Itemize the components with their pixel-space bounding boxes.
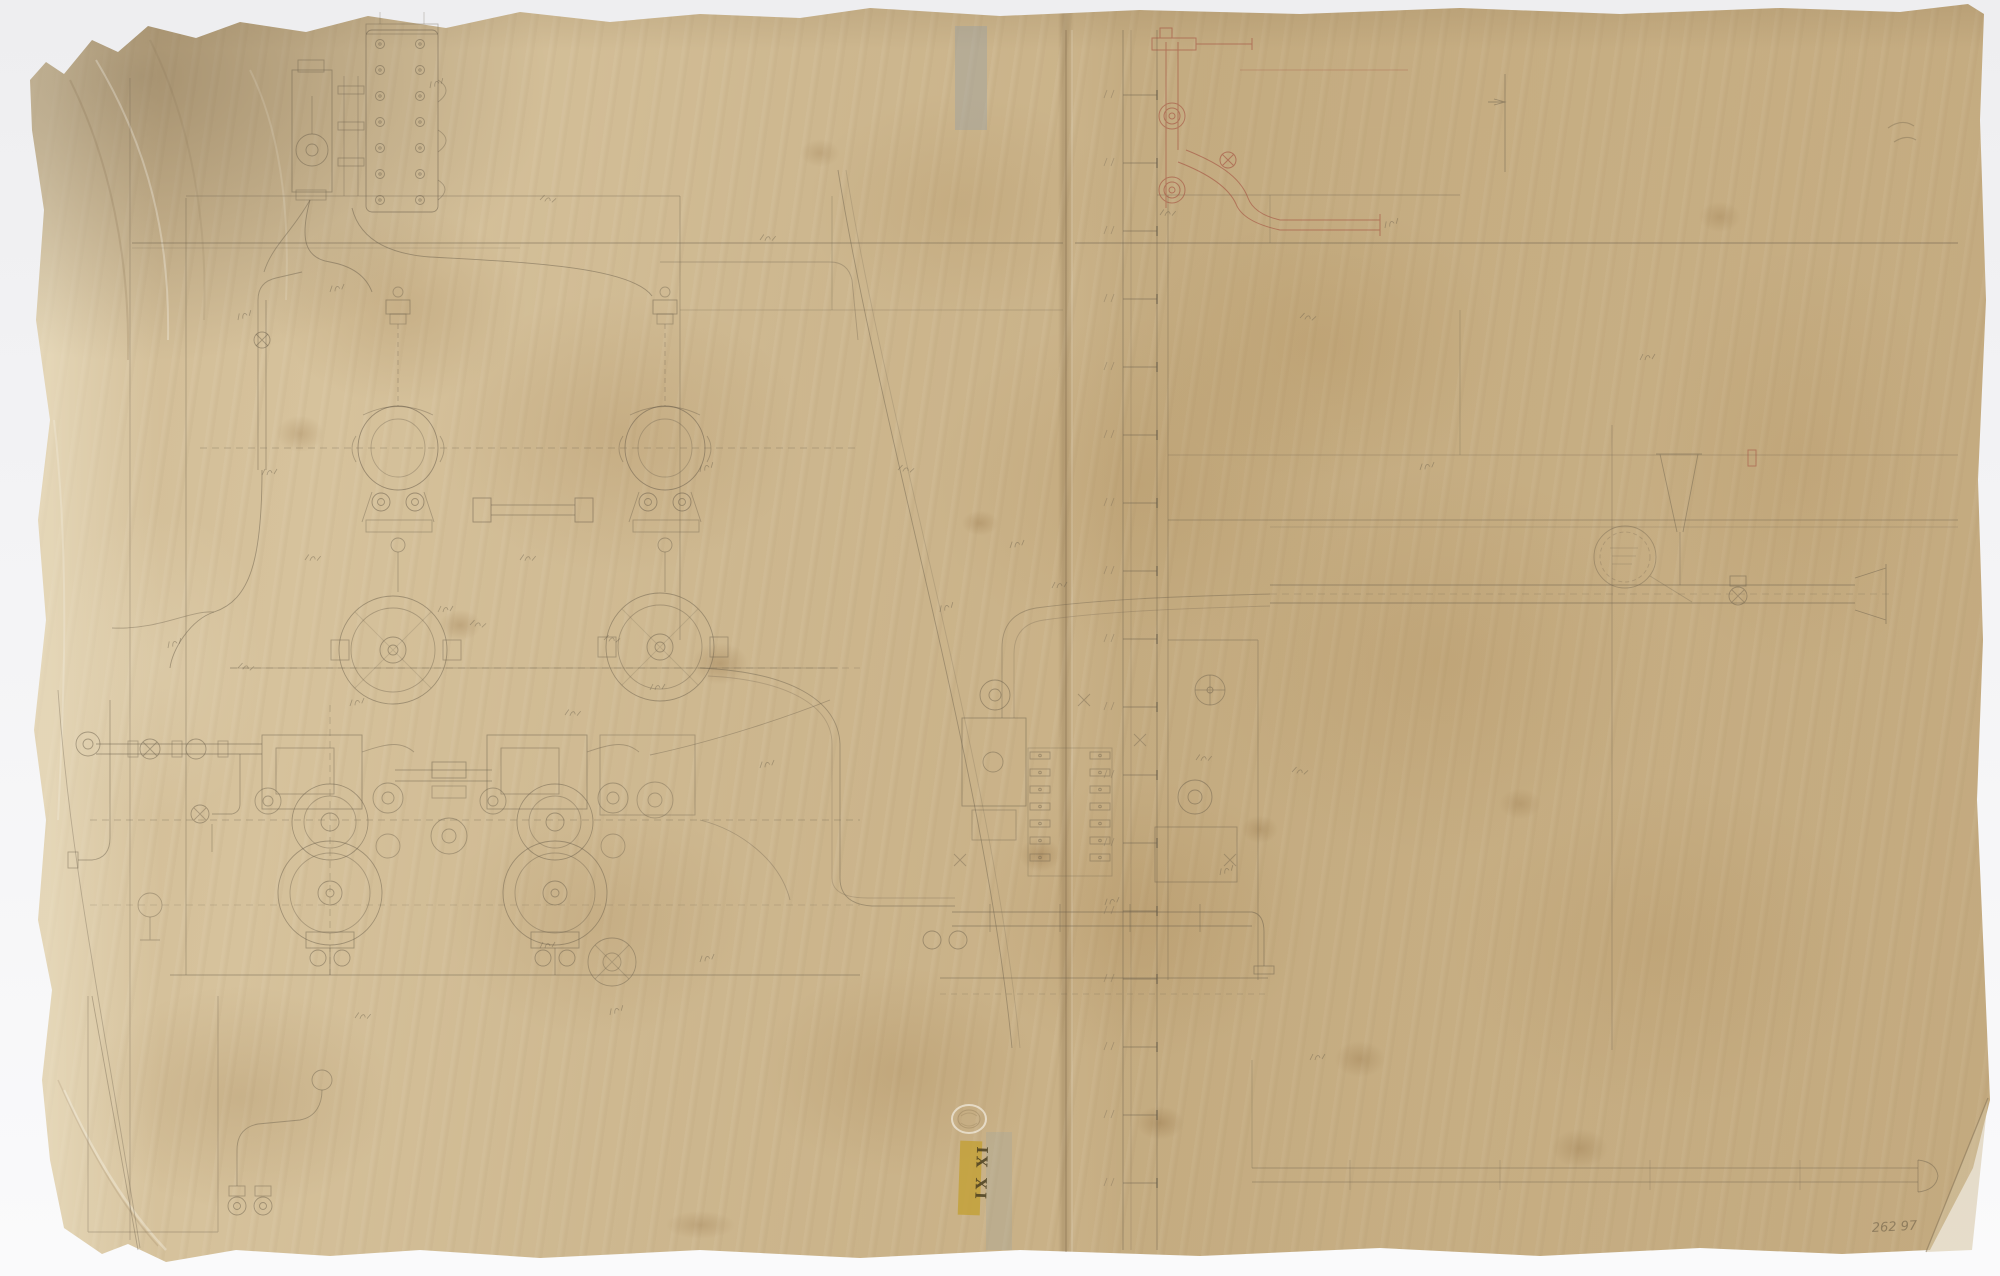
ring-pump-unit-right bbox=[598, 593, 728, 701]
cylinder-connector bbox=[473, 498, 593, 522]
embossed-round-seal bbox=[952, 1105, 986, 1133]
structural-lines bbox=[58, 74, 1958, 1250]
bolt-pattern bbox=[376, 40, 425, 205]
red-flag-mark bbox=[1748, 450, 1756, 466]
pump-coupling bbox=[395, 762, 492, 854]
stamps-and-marks: IX XI 262 97 bbox=[952, 26, 1918, 1250]
bottom-right-pipe bbox=[1252, 1060, 1938, 1192]
grey-tape-top bbox=[955, 26, 987, 130]
cylinder-unit-right bbox=[619, 287, 711, 592]
graphite-linework bbox=[58, 12, 1958, 1250]
pump-unit-right bbox=[480, 735, 639, 975]
catalog-stamp-text: IX XI bbox=[971, 1146, 991, 1202]
flange-stack-columns bbox=[1030, 752, 1110, 861]
dimension-notes bbox=[166, 78, 1655, 1060]
red-ink-piping bbox=[1152, 28, 1756, 466]
pencil-scribble-top-right bbox=[1888, 122, 1916, 142]
photographed-drawing-scene: IX XI 262 97 bbox=[0, 0, 2000, 1276]
ring-pump-unit-left bbox=[331, 596, 461, 704]
top-manifold-assembly bbox=[264, 12, 858, 340]
elevation-machinery bbox=[923, 454, 1886, 994]
pencil-note: 262 97 bbox=[1871, 1219, 1918, 1236]
bottom-left-fittings bbox=[228, 1070, 332, 1215]
left-piping bbox=[68, 272, 955, 940]
frame-ladder bbox=[1104, 30, 1157, 1250]
pump-unit-left bbox=[255, 735, 414, 975]
crinkle-lines bbox=[54, 30, 1988, 1252]
cylinder-unit-left bbox=[352, 287, 444, 592]
drawing-artwork: IX XI 262 97 bbox=[0, 0, 2000, 1276]
